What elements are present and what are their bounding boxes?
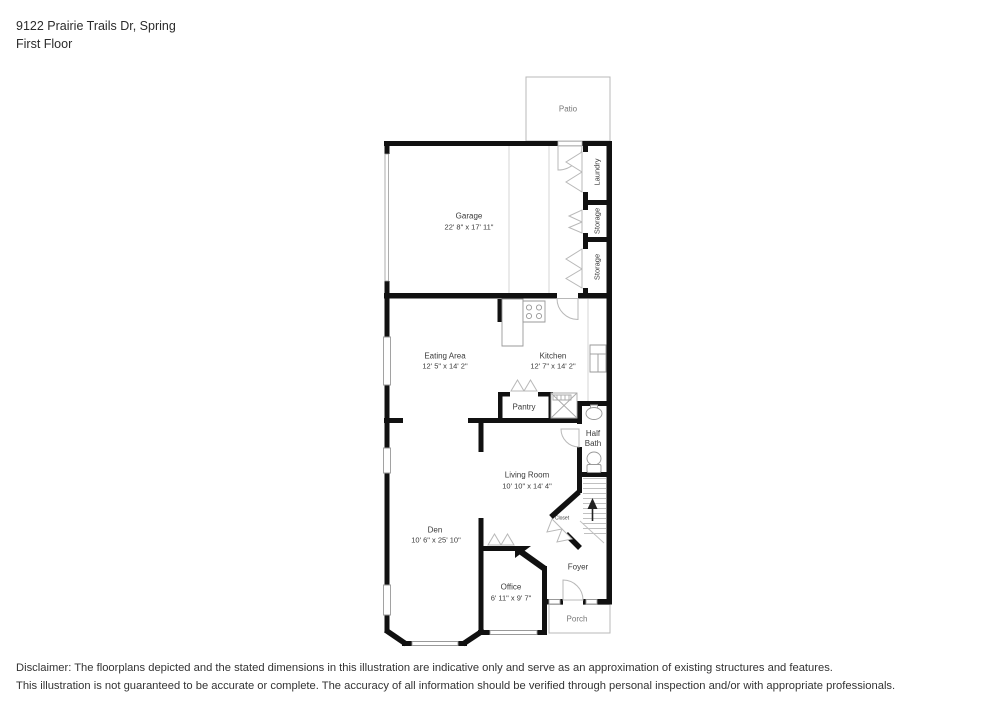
garage-floor-lines [509,146,549,293]
pantry-bifold [511,380,524,391]
pantry-bifold [524,380,537,391]
room-dims-garage: 22' 8" x 17' 11" [445,222,494,231]
storage-lower-bifold [566,249,582,269]
room-label-porch: Porch [567,614,588,623]
room-dims-kitchen: 12' 7" x 14' 2" [530,362,575,371]
room-label-kitchen: Kitchen [540,352,567,361]
room-label-laundry: Laundry [593,158,602,185]
room-label-foyer: Foyer [568,563,588,572]
floorplan-page: 9122 Prairie Trails Dr, Spring First Flo… [0,0,1000,707]
sink-icon [586,405,602,420]
utility-closet-icon [551,393,577,418]
office-bifold [501,534,514,545]
stairs-up-arrow [588,498,598,521]
room-label-eating-area: Eating Area [424,352,465,361]
toilet-icon [587,452,601,473]
kitchen-counter [502,299,523,346]
room-dims-den: 10' 6" x 25' 10" [411,536,460,545]
room-dims-eating-area: 12' 5" x 14' 2" [422,362,467,371]
fridge-icon [590,345,606,372]
room-label-pantry: Pantry [512,402,535,411]
room-label-living-room: Living Room [505,471,549,480]
room-label-storage-lower: Storage [593,254,602,280]
laundry-bifold [566,152,582,172]
storage-lower-bifold [566,269,582,288]
office-bifold [488,534,501,545]
disclaimer-line-1: Disclaimer: The floorplans depicted and … [16,662,833,674]
laundry-bifold [566,172,582,192]
room-label-den: Den [428,526,443,535]
front-door-arc [563,580,583,600]
garage-door [385,154,389,281]
room-dims-office: 6' 11" x 9' 7" [491,593,532,602]
disclaimer-line-2: This illustration is not guaranteed to b… [16,680,895,692]
room-label-storage-upper: Storage [593,208,602,234]
garage-kitchen-door-arc [557,299,578,320]
room-dims-living-room: 10' 10" x 14' 4" [502,481,551,490]
stove-icon [523,301,545,322]
room-label-office: Office [501,582,522,591]
storage-upper-bifold [569,210,582,222]
room-label-closet: Closet [555,515,569,524]
room-label-garage: Garage [456,212,483,221]
room-label-patio: Patio [559,105,577,114]
storage-upper-bifold [569,222,582,233]
room-label-half-bath: Half Bath [578,429,608,449]
